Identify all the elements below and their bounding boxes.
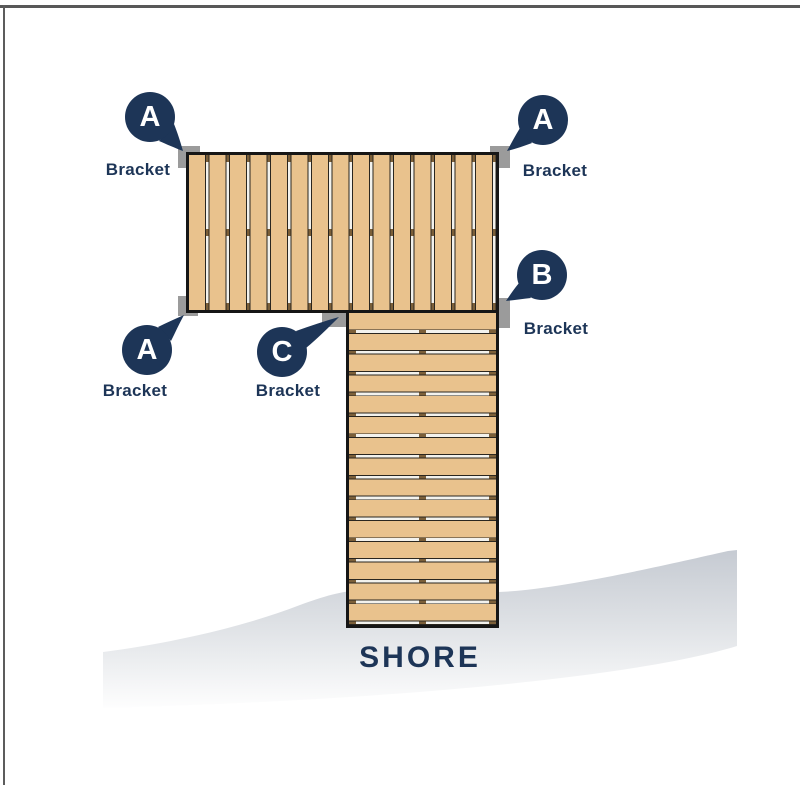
badge-letter-center: C bbox=[257, 327, 307, 377]
deck-joist-marks-middle bbox=[189, 229, 496, 236]
main-deck-platform bbox=[186, 152, 499, 313]
bracket-hardware-center bbox=[322, 312, 348, 327]
bracket-label-bottom-left: Bracket bbox=[60, 381, 210, 401]
bracket-label-top-left: Bracket bbox=[63, 160, 213, 180]
walkway-joist-marks-right bbox=[489, 313, 496, 625]
walkway-joist-marks-left bbox=[349, 313, 356, 625]
dock-diagram-canvas: A A B A C Bracket Bracket Bracket Bracke… bbox=[0, 0, 800, 800]
shore-label: SHORE bbox=[320, 641, 520, 675]
shore-walkway bbox=[346, 313, 499, 628]
bracket-label-center: Bracket bbox=[213, 381, 363, 401]
badge-letter-bottom-left: A bbox=[122, 325, 172, 375]
bracket-label-right: Bracket bbox=[481, 319, 631, 339]
bracket-label-top-right: Bracket bbox=[480, 161, 630, 181]
image-frame-top-border bbox=[0, 5, 800, 8]
badge-letter-top-right: A bbox=[518, 95, 568, 145]
image-frame-left-border bbox=[3, 5, 5, 785]
deck-joist-marks-bottom bbox=[189, 303, 496, 310]
badge-letter-right: B bbox=[517, 250, 567, 300]
badge-letter-top-left: A bbox=[125, 92, 175, 142]
walkway-joist-marks-middle bbox=[419, 313, 426, 625]
deck-joist-marks-top bbox=[189, 155, 496, 162]
